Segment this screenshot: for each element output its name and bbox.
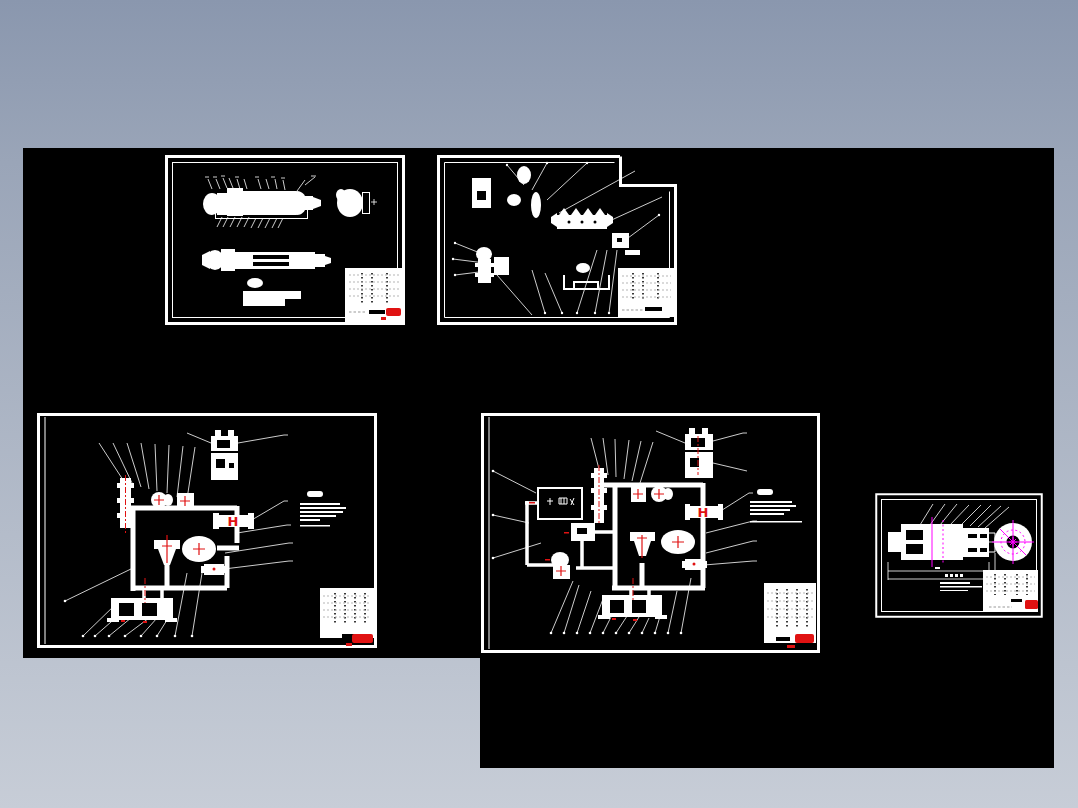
sheet1-title-block	[345, 268, 404, 323]
sheet2-left-cluster	[475, 247, 509, 283]
sheet3-title-block	[320, 588, 375, 646]
sheet4-graphics: H	[481, 413, 820, 653]
sheet4-label-box	[529, 481, 597, 525]
model-space-black-area-lower	[480, 658, 1054, 768]
sheet4-tank	[598, 578, 667, 621]
sheet1-leader-lines-top	[205, 176, 316, 191]
sheet5-red-seal	[1025, 600, 1038, 609]
sheet2-bracket	[564, 275, 609, 289]
sheet3-graphics: H	[37, 413, 377, 648]
drawing-sheet-coupling-detail	[875, 493, 1043, 618]
drawing-sheet-assembly-views	[165, 155, 405, 325]
sheet2-components	[472, 166, 640, 289]
sheet3-h-marker: H	[228, 514, 239, 529]
drawing-sheet-hydraulic-circuit-a: H	[37, 413, 377, 648]
sheet4-accumulator	[685, 428, 713, 478]
sheet5-notes-text	[940, 574, 982, 591]
drawing-sheet-hydraulic-circuit-b: H	[481, 413, 820, 653]
sheet4-h-marker: H	[698, 505, 709, 520]
sheet5-coupling-side-view	[888, 517, 996, 580]
sheet5-flange-front-view	[992, 520, 1034, 564]
drawing-sheet-parts-schematic	[437, 155, 677, 325]
sheet4-title-block	[764, 583, 816, 648]
sheet5-graphics	[875, 493, 1043, 618]
sheet4-flanged-pipe	[591, 465, 607, 525]
sheet1-side-view-circle	[336, 189, 377, 217]
sheet4-valves-and-pump: H	[545, 486, 723, 579]
sheet2-gear-part	[551, 208, 613, 229]
sheet3-accumulator	[211, 430, 238, 480]
sheet3-notes-text	[300, 491, 346, 527]
sheet2-title-block	[618, 268, 676, 317]
sheet4-notes-text	[750, 489, 802, 523]
sheet1-graphics	[165, 155, 405, 325]
sheet2-graphics	[437, 155, 677, 325]
sheet1-upper-machine-view	[203, 176, 321, 228]
sheet1-lower-cylinder-view	[202, 249, 331, 306]
sheet3-leader-lines	[64, 433, 293, 637]
sheet5-title-block	[983, 570, 1038, 612]
